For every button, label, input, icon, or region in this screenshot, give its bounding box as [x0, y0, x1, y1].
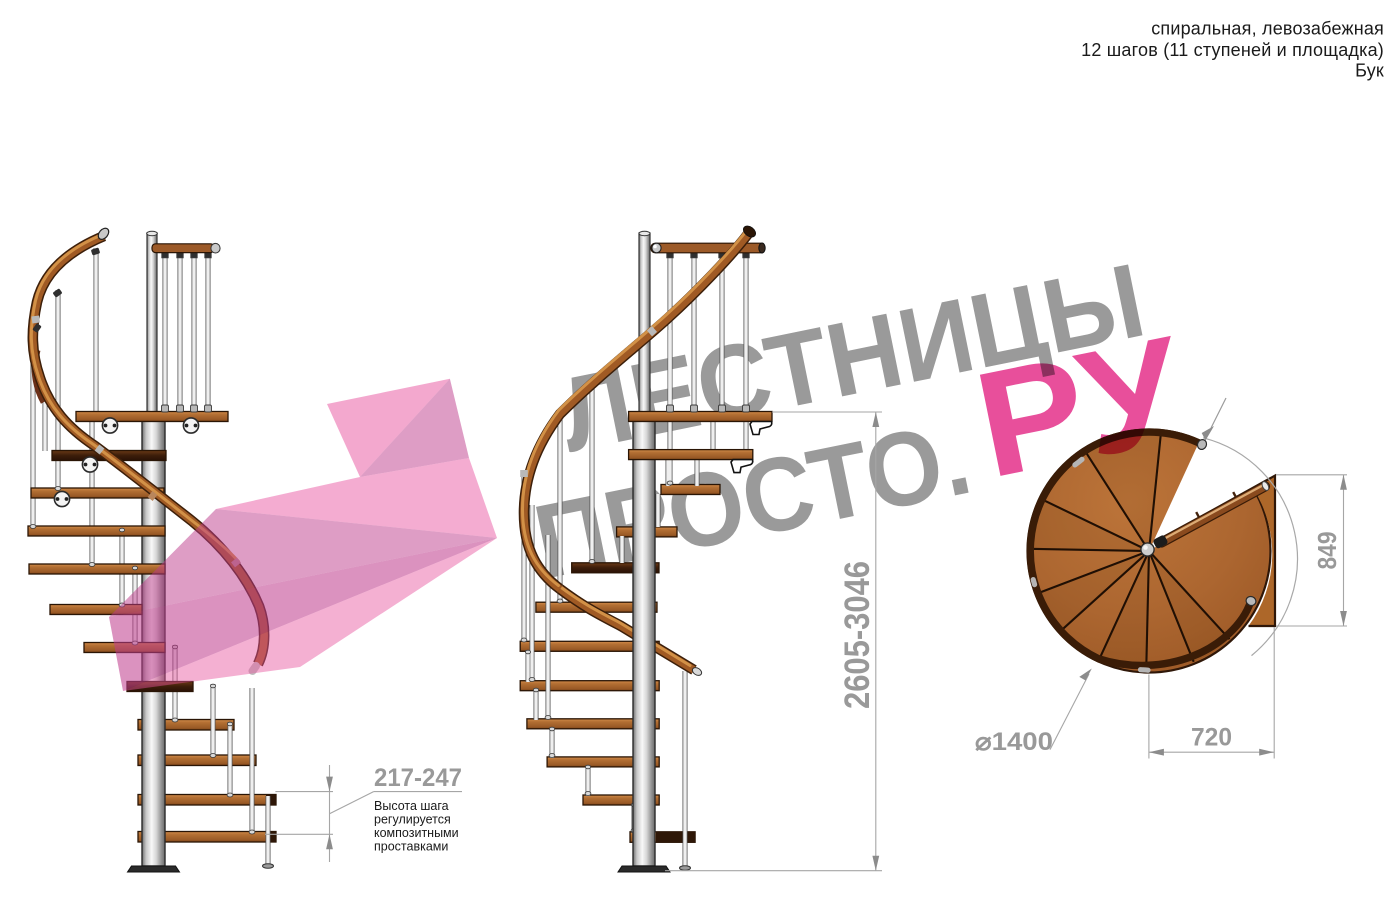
- svg-text:720: 720: [1191, 724, 1232, 752]
- svg-text:849: 849: [1312, 532, 1342, 570]
- svg-text:217-247: 217-247: [374, 764, 462, 792]
- svg-text:Бук: Бук: [1355, 61, 1384, 81]
- svg-text:⌀1400: ⌀1400: [975, 728, 1053, 756]
- svg-text:Высота шага: Высота шага: [374, 799, 449, 813]
- svg-text:композитными: композитными: [374, 826, 459, 840]
- svg-text:проставками: проставками: [374, 840, 448, 854]
- svg-text:спиральная, левозабежная: спиральная, левозабежная: [1151, 19, 1384, 39]
- svg-text:2605-3046: 2605-3046: [838, 561, 877, 709]
- svg-text:12 шагов (11 ступеней и площад: 12 шагов (11 ступеней и площадка): [1081, 40, 1384, 60]
- svg-text:регулируется: регулируется: [374, 813, 451, 827]
